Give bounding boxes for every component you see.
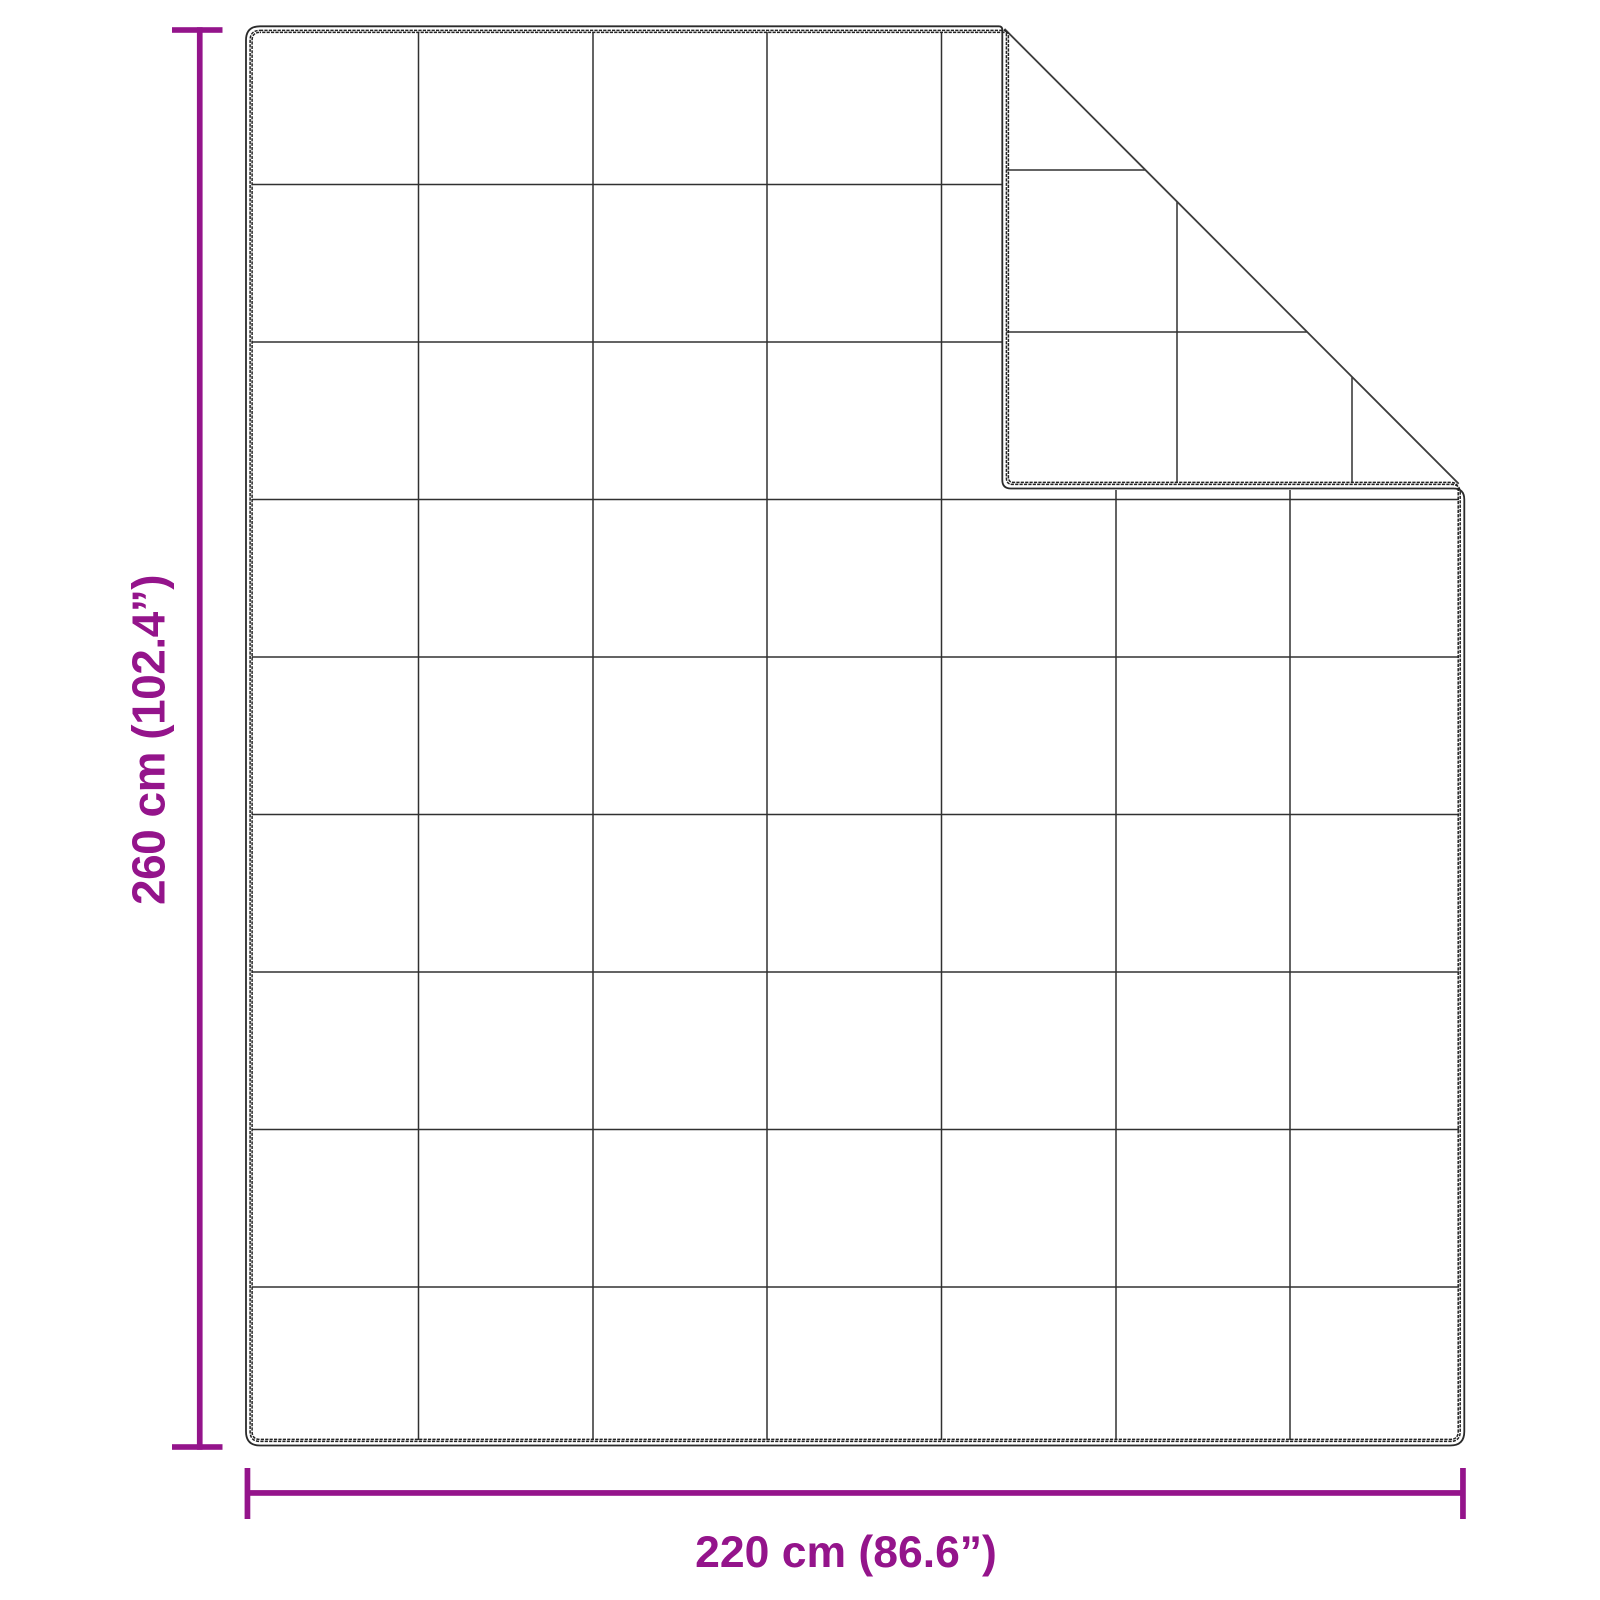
svg-text:220 cm (86.6”): 220 cm (86.6”): [695, 1528, 997, 1577]
svg-text:260 cm (102.4”): 260 cm (102.4”): [123, 575, 175, 905]
